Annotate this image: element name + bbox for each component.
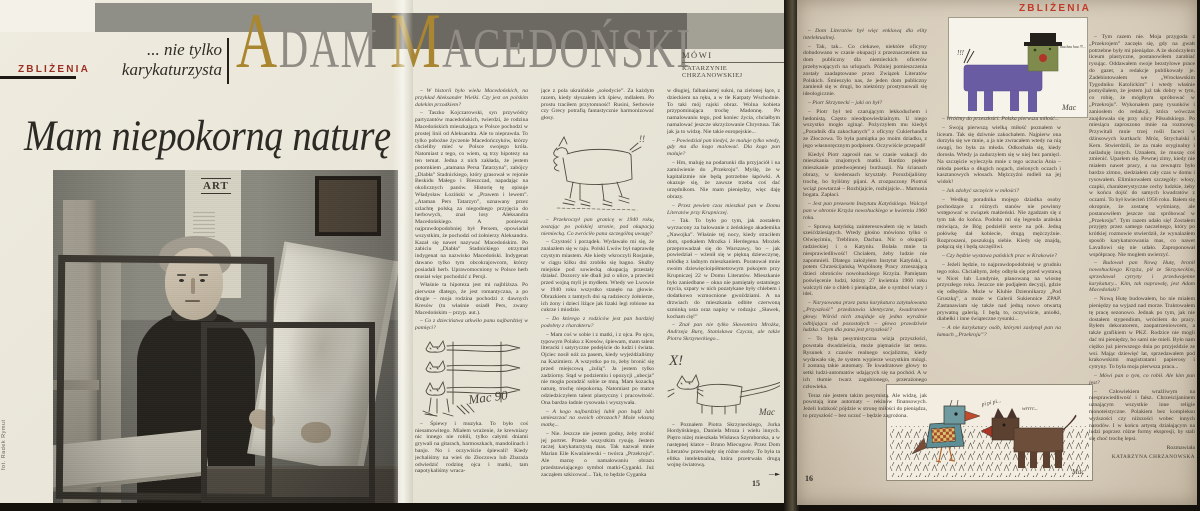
answer-paragraph: – Swoją pierwszą wielką miłość poznałem … [937, 125, 1061, 186]
answer-paragraph: – Tak. To było po tym, jak zostałem wyrz… [667, 218, 780, 320]
headline-word-macedonski: MACEDOŃSKI [390, 54, 691, 71]
dog-leg [1028, 89, 1037, 112]
dog-mouth [1039, 54, 1047, 62]
right-page: ZBLIŻENIA !!! hau hau hau !!!... Mac [797, 0, 1197, 505]
bird-eye [954, 412, 957, 415]
dog-body [1014, 428, 1063, 452]
answer-paragraph: KATARZYNA CHRZANOWSKA [1089, 454, 1195, 461]
dog-eye [1003, 424, 1006, 427]
speaks-label: MÓWI [682, 50, 786, 60]
scan-band-mid [687, 13, 786, 49]
question-paragraph: – Przez pewien czas mieszkał pan w Domu … [667, 203, 780, 217]
drawing-signature: Mac [1071, 468, 1085, 476]
question-paragraph: – Czy będzie wystawa pańskich prac w Kra… [937, 253, 1061, 260]
question-paragraph: – Do którego z rodziców jest pan bardzie… [541, 316, 654, 330]
answer-paragraph: – Tym razem nie. Moja przygoda z „Przekr… [1089, 34, 1195, 258]
question-paragraph: – Jest pan prezesem Instytutu Katyńskieg… [803, 201, 927, 221]
dog-leg [968, 89, 977, 111]
page15-column-3: w długiej, falbaniastej sukni, na zielon… [667, 88, 780, 498]
page16-column-2: – Wróćmy do przeszłości. Polska pierwsza… [937, 116, 1061, 382]
dog-sketch: !! [543, 126, 653, 214]
question-paragraph: – Jak zdobyć szczęście w miłości? [937, 188, 1061, 195]
dog-leg [1055, 450, 1062, 468]
question-paragraph: – Dom Literatów był więc enklawą dla eli… [803, 28, 927, 42]
question-paragraph: – Powiedział pan kiedyś, że maluje tylko… [667, 138, 780, 158]
question-paragraph: – Przekroczył pan granicę w 1940 roku, z… [541, 217, 654, 237]
answer-paragraph: – Mam coś w sobie i z matki, i z ojca. P… [541, 332, 654, 407]
hau-hau-text: hau hau hau !!!... [1060, 44, 1086, 49]
question-paragraph: – Budował pan Nową Hutę, bronił nowohuck… [1089, 260, 1195, 294]
long-cat-sketch: X! Mac [667, 347, 780, 419]
kicker: ... nie tylko karykaturzysta [60, 40, 222, 80]
answer-paragraph: Właśnie ta hipoteza jest mi najbliższa. … [415, 282, 528, 316]
scan-corner [0, 0, 95, 32]
headline-word-adam: ADAM [236, 54, 378, 71]
page15-column-2: jące z pola ukraińskie „sołodycie”. Za k… [541, 88, 654, 498]
question-paragraph: – W historii było wielu Macedońskich, na… [415, 88, 528, 108]
question-paragraph: – Znał pan nie tylko Sławomira Mrożka, A… [667, 322, 780, 342]
section-label-right: ZBLIŻENIA [1019, 3, 1091, 14]
photo-grain [53, 170, 398, 503]
answer-paragraph: – Taszko Kojczarowski, syn przywódcy par… [415, 110, 528, 280]
answer-paragraph: – Hm, maluję na podarunki dla przyjaciół… [667, 160, 780, 201]
dog-leg [1043, 452, 1050, 468]
speaks-block: MÓWI KATARZYNIE CHRZANOWSKIEJ [682, 50, 786, 79]
interviewer-name: KATARZYNIE CHRZANOWSKIEJ [682, 65, 786, 79]
question-paragraph: – A nie karykatury osób, którymi zasłyną… [937, 325, 1061, 339]
question-paragraph: – A kogo najbardziej lubił pan bądź lubi… [541, 409, 654, 429]
portrait-photo: ART [53, 170, 398, 503]
dog-growl-text: wrrrr... [1022, 406, 1038, 412]
question-paragraph: – Piotr Skrzynecki – jaki on był? [803, 100, 927, 107]
answer-paragraph: – To była pesymistyczna wizja przyszłośc… [803, 336, 927, 390]
question-paragraph: – Mówi pan o tym, co robił. Ale kim pan … [1089, 373, 1195, 387]
bird-head [944, 406, 965, 424]
answer-paragraph: – Według poradnika mojego dziadka osoby … [937, 197, 1061, 251]
page-number-15: 15 [752, 479, 760, 488]
answer-paragraph: – Nową Hutę budowałem, bo nie miałem pie… [1089, 296, 1195, 371]
headline: ADAMMACEDOŃSKI [236, 7, 691, 97]
question-paragraph: – Co z dzieciństwa utkwiło panu najbardz… [415, 318, 528, 332]
answer-paragraph: – Nie. Jeszcze nie jestem godny, żeby zr… [541, 431, 654, 479]
answer-paragraph: Teraz nie jestem takim pesymistą. Ale wi… [803, 393, 927, 420]
answer-paragraph: – Człowiekiem wrażliwym na niesprawiedli… [1089, 389, 1195, 443]
sketch-signature: Mac [758, 407, 775, 417]
answer-paragraph: – Czystość i porządek. Wydawało mi się, … [541, 239, 654, 314]
page-number-16: 16 [805, 474, 813, 483]
answer-paragraph: jące z pola ukraińskie „sołodycie”. Za k… [541, 88, 654, 122]
bird-wing [932, 427, 956, 443]
answer-paragraph: – Śpiewy i muzyka. To było coś niesamowi… [415, 421, 528, 475]
answer-paragraph: – Sprawą katyńską zainteresowałem się w … [803, 224, 927, 299]
kicker-divider [227, 38, 229, 84]
answer-paragraph: – Tak, tak... Co ciekawe, niektóre oficy… [803, 44, 927, 98]
purple-dog-artwork: !!! hau hau hau !!!... Mac [948, 17, 1088, 123]
sketch-exclamation: !! [639, 134, 645, 144]
kicker-line2: karykaturzysta [60, 60, 222, 80]
page-fold-highlight [393, 0, 413, 503]
answer-paragraph: Rozmawiała [1089, 445, 1195, 452]
page15-column-1: – W historii było wielu Macedońskich, na… [415, 88, 528, 498]
speaks-rule [682, 62, 786, 63]
article-title: Mam niepokorną naturę [24, 112, 391, 161]
magazine-scan: ZBLIŻENIA ... nie tylko karykaturzysta A… [0, 0, 1200, 511]
answer-paragraph: – Piotr był też czarującym lekkoduchem i… [803, 109, 927, 150]
cats-on-fence-sketch: Mac 90 [417, 336, 527, 418]
answer-paragraph: – Poznałem Piotra Skrzyneckiego, Jurka H… [667, 422, 780, 470]
dog-eye [1034, 49, 1037, 52]
dog-hat-brim [1024, 42, 1062, 46]
page16-column-3: – Tym razem nie. Moja przygoda z „Przekr… [1089, 34, 1195, 466]
dog-leg [1030, 452, 1037, 468]
kicker-line1: ... nie tylko [60, 40, 222, 60]
dog-eye [1049, 48, 1051, 50]
sketch-x-mark: X! [668, 353, 683, 369]
answer-paragraph: – Jeżeli będzie, to najprawdopodobniej w… [937, 262, 1061, 323]
drawing-exclamations: !!! [957, 49, 965, 57]
answer-paragraph: w długiej, falbaniastej sukni, na zielon… [667, 88, 780, 136]
question-paragraph: – Wróćmy do przeszłości. Polska pierwsza… [937, 116, 1061, 123]
question-paragraph: – Narysowana przez pana karykatura zatyt… [803, 300, 927, 334]
answer-paragraph: Kiedyś Piotr zaprosił nas w czasie wakac… [803, 152, 927, 200]
dog-leg [1018, 452, 1025, 468]
left-spread-page: ZBLIŻENIA ... nie tylko karykaturzysta A… [0, 0, 786, 503]
dog-leg [1010, 91, 1019, 111]
headline-initial-a: A [236, 0, 279, 84]
page16-column-1: – Dom Literatów był więc enklawą dla eli… [803, 28, 927, 468]
dog-leg [984, 91, 993, 111]
photo-credit: fot. Radek Rymut [1, 420, 7, 471]
answer-paragraph: —► [667, 471, 780, 478]
drawing-signature: Mac [1061, 103, 1077, 112]
sketch-signature: Mac 90 [466, 387, 508, 407]
